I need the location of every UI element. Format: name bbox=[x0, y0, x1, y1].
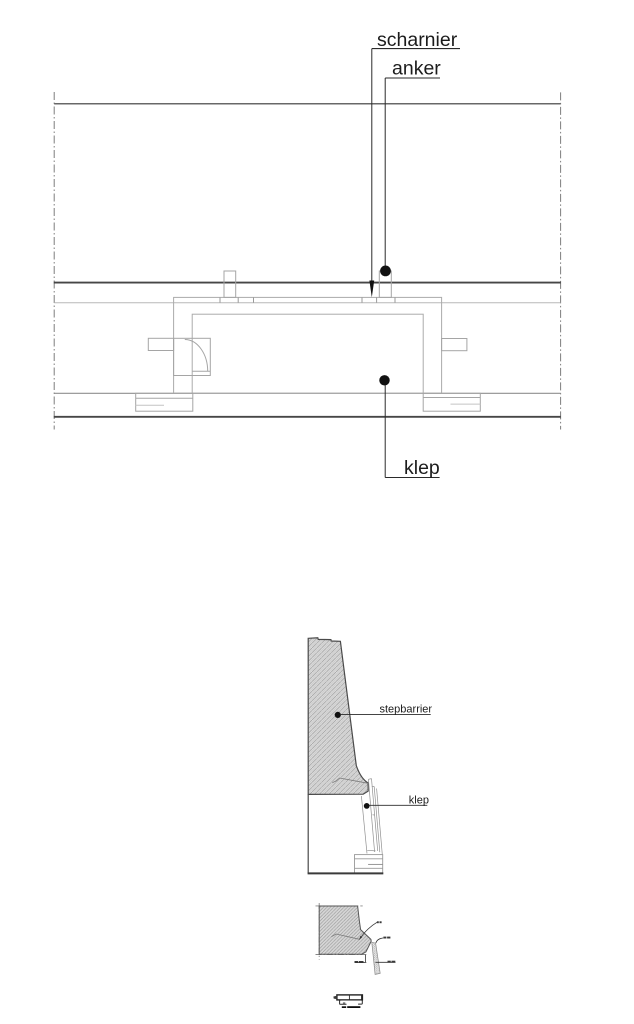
svg-text:klep: klep bbox=[404, 457, 440, 479]
svg-text:stepbarrier: stepbarrier bbox=[380, 703, 433, 715]
svg-text:klep: klep bbox=[409, 795, 429, 807]
svg-text:scharnier: scharnier bbox=[377, 29, 458, 51]
svg-text:anker: anker bbox=[392, 58, 441, 80]
